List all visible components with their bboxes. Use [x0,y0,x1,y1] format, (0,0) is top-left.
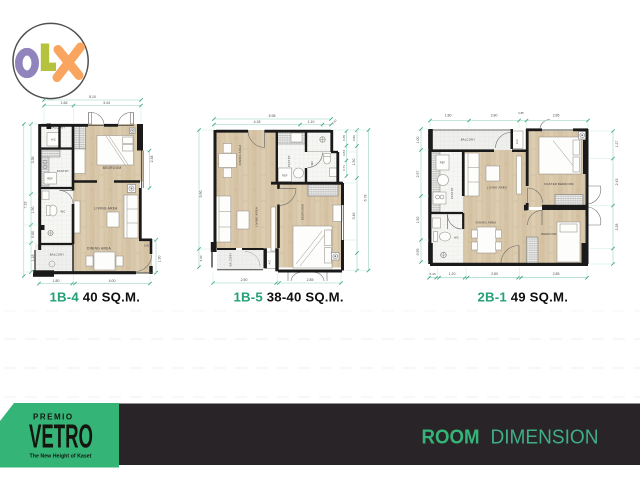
svg-text:0.45: 0.45 [342,135,346,141]
svg-text:DIMENSION: DIMENSION [491,426,599,449]
svg-text:MASTER BEDROOM: MASTER BEDROOM [544,182,574,186]
svg-text:2.97: 2.97 [416,171,420,178]
svg-text:2.80: 2.80 [491,114,498,118]
svg-text:1.80: 1.80 [53,279,60,283]
svg-text:2.50: 2.50 [241,278,248,282]
svg-text:5.98: 5.98 [269,114,276,118]
svg-text:4.00: 4.00 [109,279,116,283]
svg-text:DINING AREA: DINING AREA [238,145,242,166]
svg-text:1.27: 1.27 [615,141,619,148]
svg-text:1B-5 38-40 SQ.M.: 1B-5 38-40 SQ.M. [234,289,344,304]
svg-text:DINING AREA: DINING AREA [87,247,112,251]
svg-text:1.50: 1.50 [416,217,420,224]
svg-text:1.10: 1.10 [308,120,315,124]
svg-text:1.80: 1.80 [445,114,452,118]
svg-text:7.33: 7.33 [24,202,28,209]
svg-text:0.43: 0.43 [429,272,435,276]
svg-text:WC: WC [454,236,459,240]
svg-text:BALCONY: BALCONY [461,138,476,142]
svg-text:WC: WC [310,161,314,166]
svg-text:1.50: 1.50 [31,207,35,214]
svg-text:1.00: 1.00 [416,137,420,144]
svg-text:WC: WC [61,210,66,214]
svg-text:A/C: A/C [269,260,272,265]
svg-text:2B-1 49 SQ.M.: 2B-1 49 SQ.M. [478,289,569,304]
svg-text:0.50: 0.50 [144,244,150,248]
svg-text:REF: REF [47,178,53,181]
svg-text:BEDROOM: BEDROOM [541,232,556,236]
svg-text:0.85: 0.85 [518,111,524,115]
svg-text:0.83: 0.83 [342,150,346,156]
svg-text:LIVING AREA: LIVING AREA [94,207,118,211]
svg-text:DINING AREA: DINING AREA [476,221,497,225]
svg-text:2.85: 2.85 [307,278,314,282]
svg-text:1.66: 1.66 [61,101,68,105]
svg-text:LIVING AREA: LIVING AREA [487,186,507,190]
svg-text:0.80: 0.80 [31,231,35,238]
svg-text:2.85: 2.85 [553,114,560,118]
svg-text:REF: REF [282,175,288,178]
svg-text:4.18: 4.18 [254,120,261,124]
svg-text:BALCONY: BALCONY [50,253,65,257]
svg-text:REF: REF [440,162,446,165]
svg-text:6.78: 6.78 [364,195,368,202]
svg-text:0.95: 0.95 [416,249,420,256]
svg-text:3.38: 3.38 [31,157,35,164]
svg-text:PANTRY: PANTRY [450,187,454,199]
svg-text:ROOM: ROOM [422,426,480,449]
svg-text:1B-4 40 SQ.M.: 1B-4 40 SQ.M. [50,289,141,304]
svg-text:5.10: 5.10 [89,95,96,99]
svg-text:0.71: 0.71 [342,165,346,171]
svg-text:A/C: A/C [51,138,56,142]
svg-text:5.90: 5.90 [199,191,203,198]
svg-text:BEDROOM: BEDROOM [301,203,305,220]
svg-text:BEDROOM: BEDROOM [103,166,122,170]
svg-text:2.80: 2.80 [491,272,498,276]
svg-text:3.44: 3.44 [103,101,110,105]
svg-text:2.28: 2.28 [615,224,619,231]
svg-text:VETRO: VETRO [29,419,93,456]
svg-text:2.38: 2.38 [150,156,154,163]
svg-text:1.30: 1.30 [158,256,162,263]
svg-text:3.30: 3.30 [199,255,203,261]
svg-text:2.43: 2.43 [615,179,619,186]
svg-text:A/C: A/C [516,139,519,144]
svg-text:PANTRY: PANTRY [287,155,291,167]
svg-text:2.85: 2.85 [553,272,560,276]
svg-text:The New Height of Kaset: The New Height of Kaset [30,454,92,460]
svg-text:3.46: 3.46 [352,213,356,220]
svg-text:LIVING AREA: LIVING AREA [255,207,259,227]
svg-text:1.20: 1.20 [449,272,456,276]
svg-text:1.18: 1.18 [31,255,35,262]
svg-text:0.80: 0.80 [352,135,356,141]
svg-text:BALCONY: BALCONY [230,253,233,267]
svg-text:PANTRY: PANTRY [57,169,69,173]
svg-text:1.50: 1.50 [352,159,356,166]
